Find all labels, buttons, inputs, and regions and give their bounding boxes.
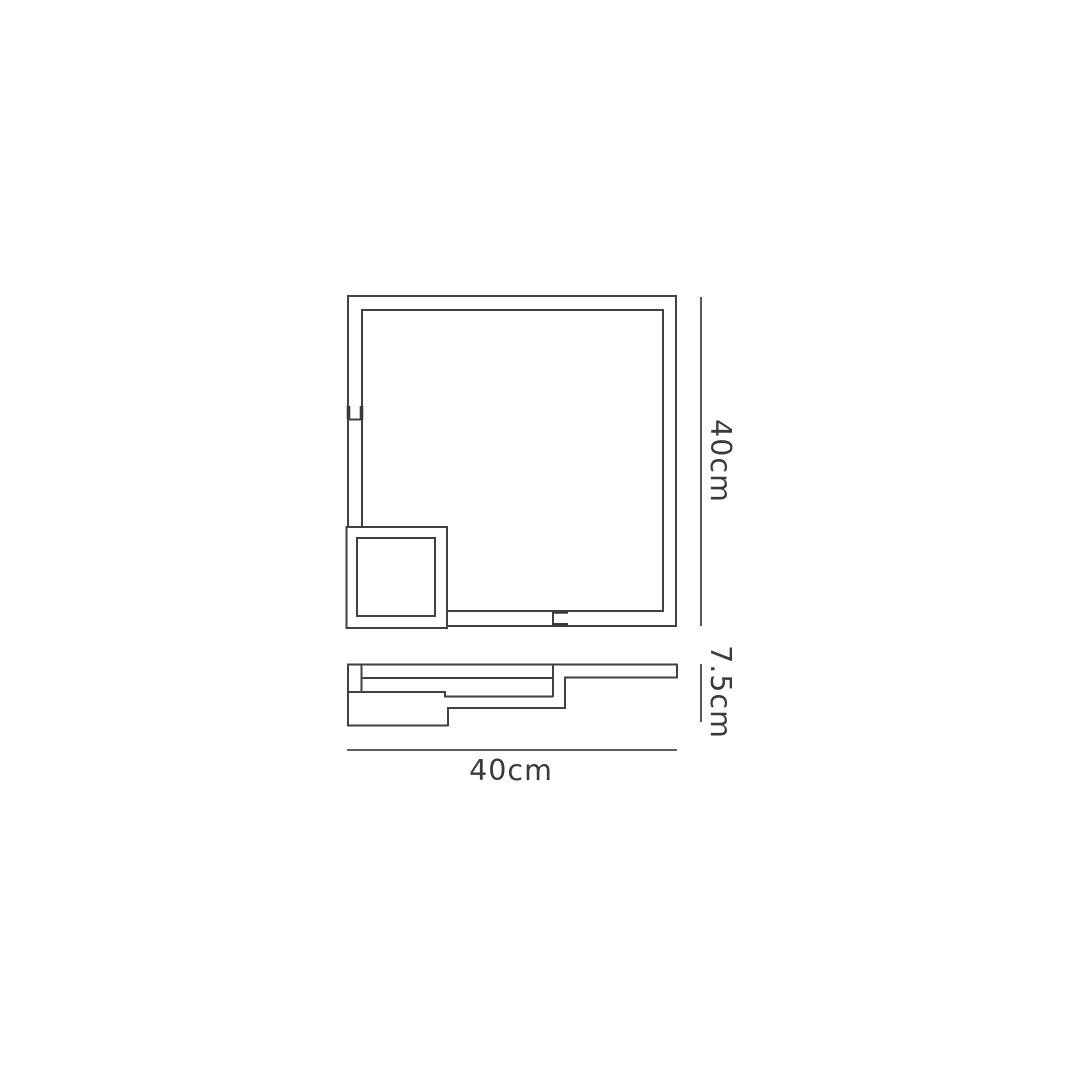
- plan-corner-box-inner: [357, 538, 435, 616]
- plan-inner-frame: [362, 310, 663, 611]
- plan-outer-frame: [348, 296, 676, 626]
- dim-label-height: 40cm: [704, 419, 737, 503]
- plan-bottom-joint-sleeve: [553, 612, 568, 625]
- dim-label-depth: 7.5cm: [704, 645, 737, 739]
- plan-left-joint-sleeve: [349, 406, 362, 420]
- dimension-diagram: 40cm 7.5cm 40cm: [0, 0, 1080, 1080]
- side-view-outline: [348, 665, 677, 726]
- plan-corner-box-outer: [347, 527, 448, 628]
- dim-label-width: 40cm: [469, 754, 553, 787]
- side-view-step-line: [348, 692, 553, 697]
- dimension-diagram-svg: 40cm 7.5cm 40cm: [0, 0, 1080, 1080]
